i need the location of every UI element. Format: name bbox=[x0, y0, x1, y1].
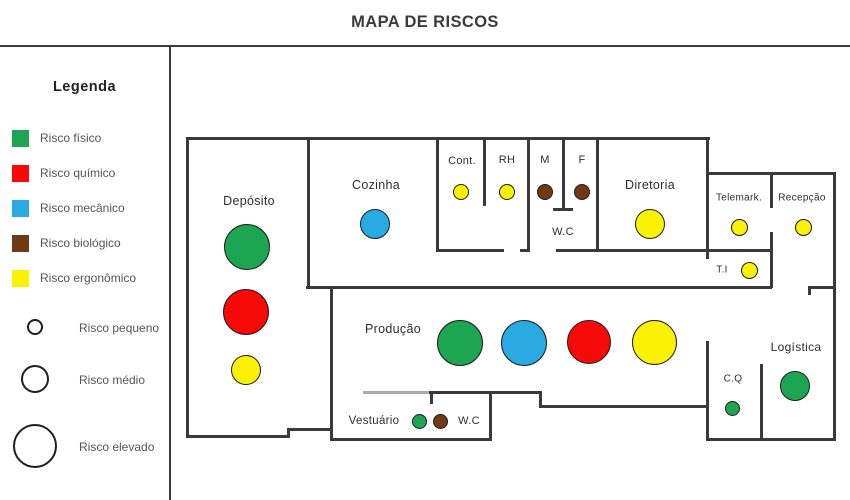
room-label-cozinha: Cozinha bbox=[352, 178, 400, 192]
wall-segment bbox=[556, 249, 598, 252]
large-risk-circle-icon bbox=[13, 424, 57, 468]
legend-item-quimico: Risco químico bbox=[12, 164, 115, 182]
legend-item-fisico: Risco físico bbox=[12, 129, 101, 147]
sidebar-divider bbox=[169, 46, 171, 500]
risk-marker-ergonomico-pequeno bbox=[795, 219, 812, 236]
wall-segment bbox=[186, 137, 189, 438]
wall-segment bbox=[307, 137, 310, 289]
wall-segment bbox=[539, 405, 709, 408]
wall-segment bbox=[489, 391, 492, 441]
wall-segment bbox=[833, 172, 836, 441]
wall-segment bbox=[706, 438, 836, 441]
room-label-deposito: Depósito bbox=[223, 194, 275, 208]
risk-marker-ergonomico-medio bbox=[635, 209, 665, 239]
wall-segment bbox=[706, 341, 709, 441]
wall-segment bbox=[483, 137, 486, 206]
risk-marker-ergonomico-pequeno bbox=[741, 262, 758, 279]
risk-biologico-swatch bbox=[12, 235, 29, 252]
wall-segment bbox=[306, 286, 772, 289]
legend-item-label: Risco químico bbox=[40, 166, 115, 180]
wall-segment bbox=[539, 391, 542, 408]
risk-marker-quimico-elevado bbox=[567, 320, 611, 364]
room-label-producao: Produção bbox=[365, 322, 421, 336]
room-label-diretoria: Diretoria bbox=[625, 178, 675, 192]
risk-marker-ergonomico-medio bbox=[231, 355, 261, 385]
risk-marker-fisico-elevado bbox=[224, 224, 270, 270]
risk-mecanico-swatch bbox=[12, 200, 29, 217]
legend-item-label: Risco ergonômico bbox=[40, 271, 136, 285]
risk-fisico-swatch bbox=[12, 130, 29, 147]
wall-segment bbox=[186, 137, 710, 140]
page-title: MAPA DE RISCOS bbox=[0, 13, 850, 32]
legend-item-label: Risco físico bbox=[40, 131, 101, 145]
wall-segment bbox=[562, 137, 565, 210]
wall-segment bbox=[287, 428, 332, 431]
risk-marker-ergonomico-pequeno bbox=[731, 219, 748, 236]
legend-size-label: Risco pequeno bbox=[79, 321, 159, 335]
legend-item-ergonomico: Risco ergonômico bbox=[12, 269, 136, 287]
wall-segment bbox=[760, 364, 763, 441]
risk-marker-ergonomico-elevado bbox=[632, 320, 677, 365]
room-label-telemark: Telemark. bbox=[716, 193, 762, 204]
room-label-rh: RH bbox=[499, 154, 516, 166]
title-divider bbox=[0, 45, 850, 47]
room-label-wc_top: W.C bbox=[552, 226, 574, 238]
wall-segment bbox=[331, 438, 492, 441]
risk-marker-fisico-elevado bbox=[437, 320, 483, 366]
risk-marker-fisico-pequeno bbox=[412, 414, 427, 429]
risk-marker-fisico-pequeno bbox=[725, 401, 740, 416]
wall-segment bbox=[436, 249, 504, 252]
wall-segment bbox=[186, 435, 289, 438]
small-risk-circle-icon bbox=[27, 319, 43, 335]
wall-segment bbox=[436, 137, 439, 251]
legend-item-label: Risco biológico bbox=[40, 236, 121, 250]
wall-segment bbox=[330, 286, 333, 441]
wall-segment bbox=[596, 137, 599, 251]
risk-quimico-swatch bbox=[12, 165, 29, 182]
risk-marker-biologico-pequeno bbox=[574, 184, 590, 200]
wall-segment bbox=[706, 137, 709, 259]
room-label-logistica: Logística bbox=[771, 340, 822, 354]
risk-ergonomico-swatch bbox=[12, 270, 29, 287]
risk-marker-mecanico-medio bbox=[360, 209, 390, 239]
risk-marker-ergonomico-pequeno bbox=[453, 184, 469, 200]
risk-marker-mecanico-elevado bbox=[501, 320, 547, 366]
room-label-wc_bottom: W.C bbox=[458, 415, 480, 427]
legend-size-label: Risco elevado bbox=[79, 440, 154, 454]
wall-segment bbox=[595, 249, 773, 252]
room-label-recepcao: Recepção bbox=[778, 193, 825, 204]
risk-marker-ergonomico-pequeno bbox=[499, 184, 515, 200]
risk-marker-biologico-pequeno bbox=[433, 414, 448, 429]
legend-item-mecanico: Risco mecânico bbox=[12, 199, 125, 217]
wall-segment bbox=[429, 391, 541, 394]
room-label-f: F bbox=[578, 154, 585, 166]
wall-segment bbox=[808, 286, 836, 289]
wall-segment bbox=[770, 172, 773, 208]
medium-risk-circle-icon bbox=[21, 365, 49, 393]
risk-marker-quimico-elevado bbox=[223, 289, 269, 335]
risk-map-screen: MAPA DE RISCOS Legenda Risco físico Risc… bbox=[0, 0, 850, 500]
risk-marker-fisico-medio bbox=[780, 371, 810, 401]
room-label-ti: T.I bbox=[716, 265, 727, 276]
legend-heading: Legenda bbox=[0, 79, 169, 95]
room-label-vestuario: Vestuário bbox=[349, 415, 400, 427]
wall-segment bbox=[287, 428, 290, 438]
room-label-m: M bbox=[540, 154, 549, 166]
legend-item-label: Risco mecânico bbox=[40, 201, 125, 215]
legend-item-biologico: Risco biológico bbox=[12, 234, 121, 252]
room-label-cq: C.Q bbox=[724, 374, 743, 385]
room-label-cont: Cont. bbox=[448, 155, 476, 167]
wall-segment bbox=[808, 286, 811, 295]
risk-marker-biologico-pequeno bbox=[537, 184, 553, 200]
wall-segment bbox=[527, 137, 530, 251]
wall-segment bbox=[770, 232, 773, 288]
wall-segment bbox=[430, 391, 433, 404]
legend-size-label: Risco médio bbox=[79, 373, 145, 387]
wall-segment bbox=[363, 391, 429, 394]
